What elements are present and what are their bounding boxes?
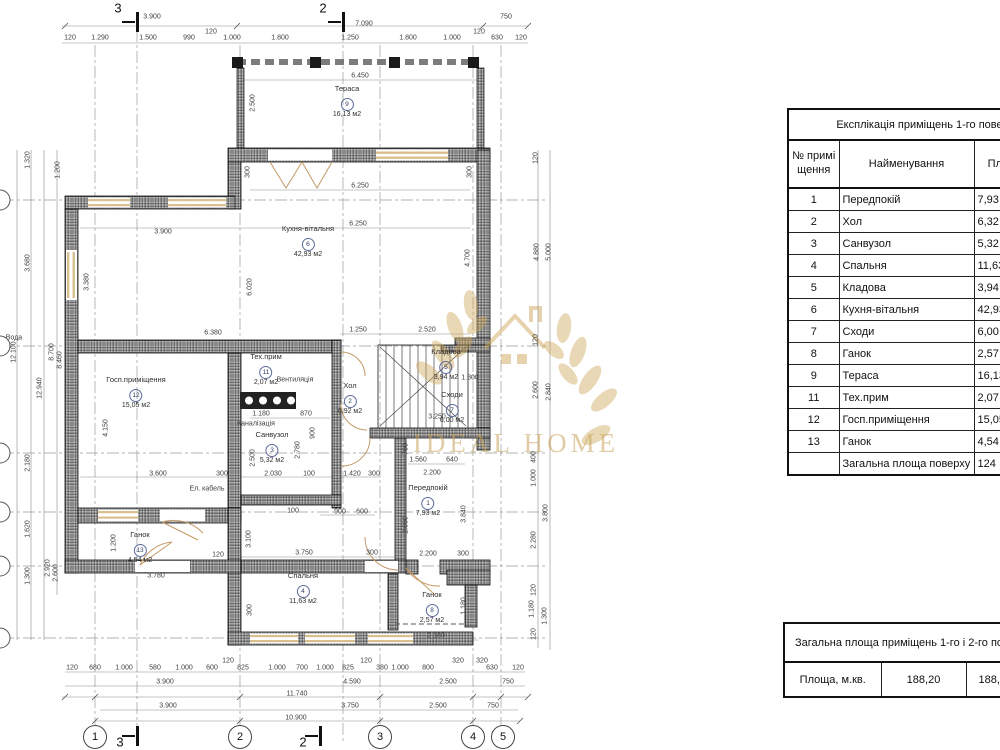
dimension-label: 700 [403, 443, 410, 455]
room-area: 15,05 м2 [106, 402, 165, 409]
dimension-label: 300 [467, 166, 474, 178]
section-marker-bar [136, 12, 139, 32]
dimension-label: 700 [296, 665, 308, 672]
grid-axis-circle: 1 [83, 725, 107, 749]
dimension-label: 8.700 [49, 343, 56, 361]
dimension-label: 1.250 [349, 327, 367, 334]
dimension-label: 3.900 [143, 14, 161, 21]
dimension-label: 1.250 [341, 35, 359, 42]
room-number-circle: 13 [134, 544, 147, 557]
explication-row: 6 Кухня-вітальня 42,93 [788, 299, 1000, 321]
dimension-label: 8.460 [57, 351, 64, 369]
dimension-label: 100 [287, 508, 299, 515]
explication-row: Загальна площа поверху 124 [788, 453, 1000, 476]
room-name-cell: Передпокій [839, 188, 974, 211]
room-name: Передпокій [408, 483, 448, 492]
room-name: Госп.приміщення [106, 375, 165, 384]
room-name-cell: Ганок [839, 431, 974, 453]
dimension-label: 600 [356, 509, 368, 516]
dimension-label: 1.000 [115, 665, 133, 672]
col-header-area: Площа, м.кв. [974, 140, 1000, 188]
dimension-label: 3.780 [147, 573, 165, 580]
dimension-label: 630 [491, 35, 503, 42]
room-number-cell: 3 [788, 233, 839, 255]
room-area-cell: 42,93 [974, 299, 1000, 321]
room-area-cell: 11,63 [974, 255, 1000, 277]
dimension-label: 3.900 [159, 703, 177, 710]
dimension-label: 380 [376, 665, 388, 672]
room-area: 6,92 м2 [338, 408, 362, 415]
room-area-cell: 7,93 [974, 188, 1000, 211]
dimension-label: 1.500 [139, 35, 157, 42]
dimension-label: 630 [486, 665, 498, 672]
room-label: Хол 2 6,92 м2 [338, 381, 362, 415]
dimension-label: 5.000 [546, 243, 553, 261]
room-number-circle: 12 [129, 389, 142, 402]
dimension-label: 2.180 [427, 633, 445, 640]
room-area-cell: 6,32 [974, 211, 1000, 233]
dimension-label: 120 [512, 665, 524, 672]
dimension-label: 6.380 [204, 330, 222, 337]
room-name-cell: Кухня-вітальня [839, 299, 974, 321]
dimension-label: 3.840 [461, 505, 468, 523]
dimension-label: 2.500 [250, 94, 257, 112]
dimension-label: 320 [452, 658, 464, 665]
room-number-cell: 1 [788, 188, 839, 211]
room-number-cell: 9 [788, 365, 839, 387]
dimension-label: Каналізація [237, 421, 275, 428]
dimension-label: Вентиляція [277, 377, 314, 384]
section-marker-arrow [305, 735, 318, 737]
section-marker-arrow [122, 21, 135, 23]
room-label: Санвузол 3 5,32 м2 [255, 430, 288, 464]
dimension-label: 300 [245, 166, 252, 178]
room-number-circle: 4 [296, 585, 309, 598]
dimension-label: 2.780 [295, 441, 302, 459]
dimension-label: 6.450 [351, 73, 369, 80]
dimension-label: 2.840 [546, 383, 553, 401]
room-area-cell: 4,54 [974, 431, 1000, 453]
explication-table-title: Експлікація приміщень 1-го поверху [788, 109, 1000, 140]
dimension-label: 2.920 [45, 559, 52, 577]
room-area: 7,93 м2 [408, 510, 448, 517]
room-number-cell: 8 [788, 343, 839, 365]
dimension-label: 2.200 [419, 551, 437, 558]
dimension-label: 1.180 [252, 411, 270, 418]
explication-row: 13 Ганок 4,54 [788, 431, 1000, 453]
explication-row: 3 Санвузол 5,32 [788, 233, 1000, 255]
room-name-cell: Санвузол [839, 233, 974, 255]
dimension-label: 900 [334, 509, 346, 516]
room-name-cell: Сходи [839, 321, 974, 343]
dimension-label: 3.800 [543, 504, 550, 522]
room-name: Сходи [440, 390, 464, 399]
dimension-label: 120 [533, 152, 540, 164]
room-number-cell: 13 [788, 431, 839, 453]
room-number-circle: 11 [260, 366, 273, 379]
dimension-label: 1.800 [399, 35, 417, 42]
dimension-label: 400 [531, 451, 538, 463]
room-name: Ганок [128, 530, 152, 539]
room-name-cell: Загальна площа поверху [839, 453, 974, 476]
dimension-label: 300 [457, 551, 469, 558]
room-number-circle: 3 [266, 444, 279, 457]
dimension-label: 6.250 [351, 183, 369, 190]
explication-row: 1 Передпокій 7,93 [788, 188, 1000, 211]
room-number-circle: 9 [340, 98, 353, 111]
dimension-label: 2.030 [264, 471, 282, 478]
room-area: 2,57 м2 [420, 617, 444, 624]
dimension-label: 320 [476, 658, 488, 665]
dimension-label: 3.900 [154, 229, 172, 236]
section-marker-bar [342, 12, 345, 32]
dimension-label: 825 [342, 665, 354, 672]
dimension-label: 1.000 [223, 35, 241, 42]
dimension-label: 1.290 [91, 35, 109, 42]
room-name: Кладова [431, 347, 461, 356]
room-name: Ганок [420, 590, 444, 599]
room-area: 2,07 м2 [250, 379, 282, 386]
room-number-cell: 5 [788, 277, 839, 299]
section-marker-bar [136, 726, 139, 746]
room-number-cell: 12 [788, 409, 839, 431]
room-area: 3,94 м2 [431, 374, 461, 381]
explication-row: 2 Хол 6,32 [788, 211, 1000, 233]
dimension-label: 1.180 [461, 597, 468, 615]
dimension-label: 120 [360, 658, 372, 665]
dimension-label: 6.250 [349, 221, 367, 228]
dimension-label: 1.000 [316, 665, 334, 672]
dimension-label: 2.280 [531, 531, 538, 549]
room-area-cell: 2,07 [974, 387, 1000, 409]
room-name-cell: Госп.приміщення [839, 409, 974, 431]
dimension-label: 1.200 [111, 534, 118, 552]
room-number-circle: 1 [422, 497, 435, 510]
dimension-label: 600 [206, 665, 218, 672]
room-area-cell: 16,13 [974, 365, 1000, 387]
dimension-label: 2.600 [53, 564, 60, 582]
room-number-cell: 2 [788, 211, 839, 233]
dimension-label: 1.560 [409, 457, 427, 464]
dimension-label: 12.940 [37, 377, 44, 398]
dimension-label: 120 [64, 35, 76, 42]
dimension-label: 120 [212, 552, 224, 559]
dimension-label: 750 [500, 14, 512, 21]
room-name: Спальня [288, 571, 318, 580]
explication-row: 9 Тераса 16,13 [788, 365, 1000, 387]
dimension-label: 12.100 [11, 341, 18, 362]
col-header-name: Найменування [839, 140, 974, 188]
room-area: 42,93 м2 [282, 251, 334, 258]
room-name: Тех.прим [250, 352, 282, 361]
dimension-label: 990 [183, 35, 195, 42]
dimension-label: 800 [422, 665, 434, 672]
dimension-label: 1.320 [25, 151, 32, 169]
section-marker-bar [319, 726, 322, 746]
room-area: 11,63 м2 [288, 598, 318, 605]
dimension-label: 4.590 [343, 679, 361, 686]
room-number-circle: 8 [426, 604, 439, 617]
dimension-label: 3.680 [25, 254, 32, 272]
total-area-row-label: Площа, м.кв. [784, 662, 881, 697]
dimension-label: 300 [368, 471, 380, 478]
room-label: Госп.приміщення 12 15,05 м2 [106, 375, 165, 409]
room-number-cell [788, 453, 839, 476]
room-area-cell: 6,00 [974, 321, 1000, 343]
dimension-label: 3.600 [149, 471, 167, 478]
explication-row: 12 Госп.приміщення 15,05 [788, 409, 1000, 431]
dimension-label: 825 [237, 665, 249, 672]
dimension-label: 120 [66, 665, 78, 672]
room-area-cell: 124 [974, 453, 1000, 476]
room-name: Хол [338, 381, 362, 390]
section-marker-arrow [122, 735, 135, 737]
room-label: Кухня-вітальня 6 42,93 м2 [282, 224, 334, 258]
dimension-label: Ел. кабель [189, 486, 224, 493]
room-name-cell: Хол [839, 211, 974, 233]
explication-row: 7 Сходи 6,00 [788, 321, 1000, 343]
col-header-number: № приміщення [788, 140, 839, 188]
total-area-table: Загальна площа приміщень 1-го і 2-го пов… [783, 622, 1000, 698]
dimension-label: 1.000 [391, 665, 409, 672]
explication-row: 8 Ганок 2,57 [788, 343, 1000, 365]
room-name: Санвузол [255, 430, 288, 439]
total-area-title: Загальна площа приміщень 1-го і 2-го пов… [784, 623, 1000, 662]
dimension-label: 1.420 [343, 471, 361, 478]
dimension-label: 120 [222, 658, 234, 665]
dimension-label: 6.020 [247, 278, 254, 296]
explication-row: 4 Спальня 11,63 [788, 255, 1000, 277]
dimension-label: 120 [533, 334, 540, 346]
dimension-label: 640 [446, 457, 458, 464]
room-label: Кладова 5 3,94 м2 [431, 347, 461, 381]
dimension-label: 3.380 [84, 273, 91, 291]
dimension-label: 1.800 [461, 375, 479, 382]
dimension-label: 120 [531, 628, 538, 640]
grid-axis-circle: 2 [228, 725, 252, 749]
room-area: 6,00 м2 [440, 417, 464, 424]
room-label: Тераса 9 16,13 м2 [333, 84, 361, 118]
dimension-label: 1.800 [271, 35, 289, 42]
total-area-value-2: 188,20 [966, 662, 1000, 697]
dimension-label: 2.200 [423, 470, 441, 477]
room-area-cell: 3,94 [974, 277, 1000, 299]
room-number-cell: 11 [788, 387, 839, 409]
grid-axis-circle: 5 [491, 725, 515, 749]
room-area-cell: 15,05 [974, 409, 1000, 431]
dimension-label: 1.200 [55, 161, 62, 179]
room-name-cell: Тех.прим [839, 387, 974, 409]
room-number-circle: 7 [446, 404, 459, 417]
dimension-label: 120 [205, 29, 217, 36]
dimension-label: 120 [473, 29, 485, 36]
dimension-label: 3.900 [156, 679, 174, 686]
room-label: Ганок 13 4,54 м2 [128, 530, 152, 564]
dimension-label: 100 [303, 471, 315, 478]
dimension-label: 2.520 [418, 327, 436, 334]
explication-row: 5 Кладова 3,94 [788, 277, 1000, 299]
room-number-circle: 5 [439, 361, 452, 374]
room-label: Передпокій 1 7,93 м2 [408, 483, 448, 517]
dimension-label: 3.750 [295, 550, 313, 557]
room-number-circle: 6 [301, 238, 314, 251]
room-name-cell: Спальня [839, 255, 974, 277]
dimension-label: 680 [89, 665, 101, 672]
floor-plan-page: { "watermark": {"brand": "IDEAL HOME", "… [0, 0, 1000, 750]
dimension-label: 4.150 [103, 419, 110, 437]
room-name-cell: Ганок [839, 343, 974, 365]
explication-row: 11 Тех.прим 2,07 [788, 387, 1000, 409]
room-name: Кухня-вітальня [282, 224, 334, 233]
dimension-label: 1.620 [25, 520, 32, 538]
room-number-cell: 4 [788, 255, 839, 277]
section-marker-label: 3 [114, 1, 121, 16]
grid-axis-circle: 4 [461, 725, 485, 749]
room-area: 16,13 м2 [333, 111, 361, 118]
dimension-label: 10.900 [285, 715, 306, 722]
room-name: Тераса [333, 84, 361, 93]
dimension-label: 1.300 [25, 567, 32, 585]
dimension-label: 3.750 [341, 703, 359, 710]
dimension-label: 1.000 [443, 35, 461, 42]
room-label: Тех.прим 11 2,07 м2 [250, 352, 282, 386]
dimension-label: 4.700 [465, 249, 472, 267]
room-area: 4,54 м2 [128, 557, 152, 564]
room-area: 5,32 м2 [255, 457, 288, 464]
room-label: Сходи 7 6,00 м2 [440, 390, 464, 424]
dimension-label: 300 [366, 550, 378, 557]
room-name-cell: Тераса [839, 365, 974, 387]
room-label: Ганок 8 2,57 м2 [420, 590, 444, 624]
room-name-cell: Кладова [839, 277, 974, 299]
total-area-value-1: 188,20 [881, 662, 966, 697]
dimension-label: 2.180 [25, 454, 32, 472]
section-marker-arrow [328, 21, 341, 23]
dimension-label: 11.740 [287, 691, 308, 698]
dimension-label: 1.180 [529, 600, 536, 618]
room-area-cell: 2,57 [974, 343, 1000, 365]
dimension-label: 580 [149, 665, 161, 672]
dimension-label: 2.600 [533, 381, 540, 399]
dimension-label: 750 [487, 703, 499, 710]
dimension-label: 120 [515, 35, 527, 42]
dimension-label: 300 [216, 471, 228, 478]
dimension-label: 870 [300, 411, 312, 418]
dimension-label: 300 [247, 604, 254, 616]
dimension-label: 1.000 [175, 665, 193, 672]
room-number-cell: 6 [788, 299, 839, 321]
grid-axis-circle: 3 [368, 725, 392, 749]
dimension-label: 1.000 [531, 469, 538, 487]
dimension-label: 4.880 [534, 243, 541, 261]
section-marker-label: 2 [319, 1, 326, 16]
dimension-label: 2.060 [403, 516, 410, 534]
dimension-label: 2.500 [429, 703, 447, 710]
room-label: Спальня 4 11,63 м2 [288, 571, 318, 605]
dimension-label: 750 [502, 679, 514, 686]
dimension-label: 120 [531, 584, 538, 596]
dimension-label: 3.100 [246, 530, 253, 548]
dimension-label: 1.300 [542, 607, 549, 625]
room-area-cell: 5,32 [974, 233, 1000, 255]
dimension-label: 1.000 [268, 665, 286, 672]
dimension-label: 7.090 [355, 21, 373, 28]
dimension-label: 2.500 [439, 679, 457, 686]
room-number-cell: 7 [788, 321, 839, 343]
dimension-label: 900 [310, 427, 317, 439]
explication-table: Експлікація приміщень 1-го поверху № при… [787, 108, 1000, 476]
room-number-circle: 2 [344, 395, 357, 408]
